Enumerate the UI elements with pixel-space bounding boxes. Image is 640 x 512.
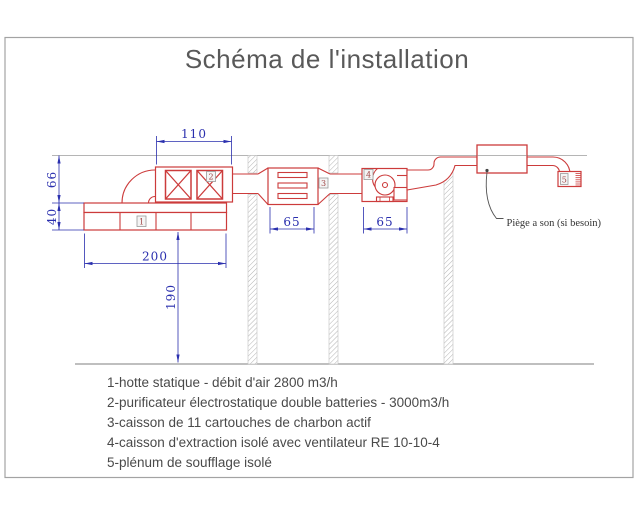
dim-value: 40	[45, 208, 59, 225]
sound-trap-annotation: Piège a son (si besoin)	[507, 218, 602, 229]
purifier-box	[156, 167, 233, 202]
component-tag-4: 4	[364, 170, 373, 180]
fan-outlet	[394, 188, 407, 201]
component-tag-5: 5	[561, 174, 569, 185]
dim-purifier-width: 110	[157, 127, 232, 165]
tag-number: 1	[139, 217, 144, 226]
tag-number: 3	[321, 179, 326, 188]
dimensions: 110 66 40 200 190	[45, 127, 407, 363]
wall-3	[444, 170, 453, 364]
legend-item-2: 2-purificateur électrostatique double ba…	[107, 393, 449, 413]
wall-2-lower	[329, 195, 338, 365]
hood-body	[84, 203, 227, 230]
component-tag-1: 1	[137, 216, 146, 227]
dim-value: 65	[376, 215, 393, 229]
tag-number: 4	[366, 171, 371, 180]
wall-2-upper	[329, 156, 338, 174]
page-title: Schéma de l'installation	[0, 44, 640, 75]
wall-1-lower	[248, 195, 257, 365]
tag-number: 5	[562, 176, 567, 185]
legend-item-4: 4-caisson d'extraction isolé avec ventil…	[107, 433, 449, 453]
leader-dot	[485, 169, 488, 172]
dim-value: 190	[164, 284, 178, 310]
legend-item-3: 3-caisson de 11 cartouches de charbon ac…	[107, 413, 449, 433]
component-tag-2: 2	[207, 172, 216, 182]
leader-line	[486, 172, 503, 219]
riser-duct	[407, 157, 477, 190]
legend-item-5: 5-plénum de soufflage isolé	[107, 453, 449, 473]
dim-fan-width: 65	[364, 207, 408, 234]
tag-number: 2	[208, 173, 213, 182]
sound-trap-callout: Piège a son (si besoin)	[485, 169, 601, 229]
dim-duct-height: 66	[45, 156, 84, 204]
dim-value: 110	[181, 127, 207, 141]
dim-hood-width: 200	[85, 234, 227, 269]
wall-1-upper	[248, 156, 257, 174]
carbon-filter-box	[268, 168, 318, 205]
plenum-grille	[576, 174, 581, 187]
dim-value: 66	[45, 171, 59, 188]
fan-hub	[383, 183, 388, 188]
dim-carbon-width: 65	[270, 207, 314, 234]
legend: 1-hotte statique - débit d'air 2800 m3/h…	[107, 373, 449, 473]
sound-trap-box	[477, 145, 527, 173]
legend-item-1: 1-hotte statique - débit d'air 2800 m3/h	[107, 373, 449, 393]
dim-hood-height: 40	[45, 203, 84, 230]
dim-value: 200	[142, 250, 168, 264]
drawing-sheet: Piège a son (si besoin) 110 66 40	[0, 0, 640, 512]
dim-value: 65	[283, 215, 300, 229]
component-tag-3: 3	[319, 178, 328, 188]
hood-elbow-duct	[122, 170, 155, 203]
